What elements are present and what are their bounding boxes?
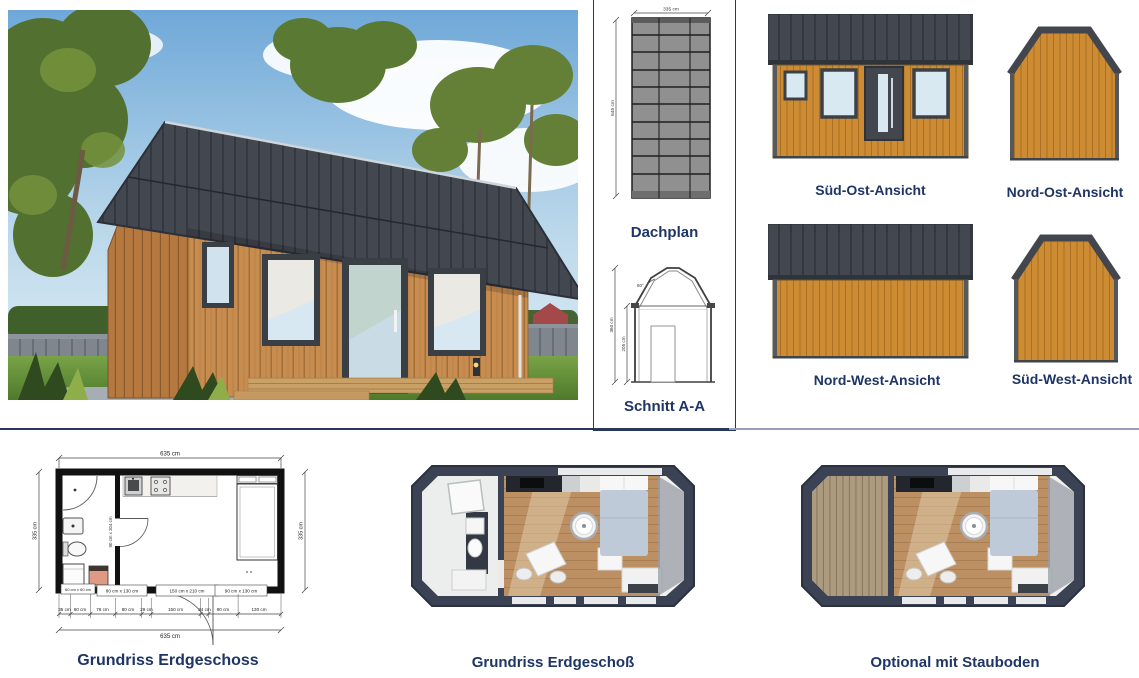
end-wedge xyxy=(658,476,684,596)
render-plan-caption: Grundriss Erdgeschoß xyxy=(433,654,673,671)
roof-dim-width: 335 cm xyxy=(663,7,679,13)
elevation-nord-west xyxy=(768,224,973,364)
dim-right-text: 335 cm xyxy=(299,522,305,540)
chair xyxy=(550,571,566,583)
small-window xyxy=(202,242,234,308)
svg-text:150 cm: 150 cm xyxy=(168,607,183,612)
render-plan xyxy=(408,462,698,610)
label-nord-ost: Nord-Ost-Ansicht xyxy=(985,184,1139,200)
svg-text:90 cm: 90 cm xyxy=(217,607,230,612)
roof-plan-title: Dachplan xyxy=(594,224,735,241)
window-right xyxy=(914,70,948,117)
elevation-nord-ost xyxy=(1002,18,1127,166)
entry-door xyxy=(865,67,903,140)
chain-labels: 35 cm 60 cm 76 cm 80 cm 29 cm 150 cm 24 … xyxy=(58,607,266,612)
section-title: Schnitt A-A xyxy=(594,398,735,415)
window-right xyxy=(428,268,486,356)
svg-text:76 cm: 76 cm xyxy=(96,607,109,612)
svg-text:90 cm x 130 cm: 90 cm x 130 cm xyxy=(225,589,258,594)
svg-text:60 cm x 60 cm: 60 cm x 60 cm xyxy=(65,587,92,592)
siding xyxy=(773,280,968,358)
optional-plan xyxy=(798,462,1088,610)
chair xyxy=(906,568,922,580)
doormat xyxy=(628,584,658,593)
svg-text:29 cm: 29 cm xyxy=(140,607,153,612)
svg-text:60 cm: 60 cm xyxy=(74,607,87,612)
label-sued-west: Süd-West-Ansicht xyxy=(992,371,1139,387)
svg-text:80 cm x 130 cm: 80 cm x 130 cm xyxy=(106,589,139,594)
chair xyxy=(940,571,956,583)
dim-bottom-text: 635 cm xyxy=(160,634,180,640)
toilet xyxy=(468,539,482,557)
section-drawing: 360 cm 205 cm 60° xyxy=(601,252,729,394)
end-wedge xyxy=(1048,476,1074,596)
kitchen xyxy=(123,476,217,497)
glass-door xyxy=(342,258,408,394)
plans-column: 335 cm 645 cm Dachplan 360 cm 205 cm xyxy=(593,0,736,431)
section-door xyxy=(651,326,675,382)
dim-top-text: 635 cm xyxy=(160,452,180,458)
cabin-photo xyxy=(8,10,578,400)
svg-text:35 cm: 35 cm xyxy=(58,607,71,612)
divider-wall xyxy=(888,476,894,596)
extension-lines xyxy=(59,594,281,618)
label-nord-west: Nord-West-Ansicht xyxy=(768,372,986,388)
section-angle: 60° xyxy=(637,283,644,288)
technical-floor-plan: 635 cm 335 cm 335 cm 90 cm x 204 cm xyxy=(15,448,325,648)
vanity xyxy=(452,570,486,590)
elevation-sued-ost xyxy=(768,14,973,164)
cooktop xyxy=(910,478,934,488)
window-left xyxy=(262,254,320,346)
floor-plan-caption: Grundriss Erdgeschoss xyxy=(40,652,296,670)
bed xyxy=(237,476,278,561)
svg-text:80 cm: 80 cm xyxy=(122,607,135,612)
bed-mattress xyxy=(990,490,1038,556)
roof-band xyxy=(768,224,973,279)
svg-text:150 cm x 210 cm: 150 cm x 210 cm xyxy=(170,589,205,594)
elevation-sued-west xyxy=(1006,226,1128,366)
window-left xyxy=(822,70,856,117)
roof-band xyxy=(768,14,973,64)
label-sued-ost: Süd-Ost-Ansicht xyxy=(768,182,973,198)
roof-panels xyxy=(632,18,710,198)
door-handle xyxy=(394,310,397,332)
doormat xyxy=(1018,584,1048,593)
roof-plan-drawing: 335 cm 645 cm xyxy=(604,4,724,216)
sink xyxy=(466,518,484,534)
section-total-height: 360 cm xyxy=(609,317,614,332)
svg-text:24 cm: 24 cm xyxy=(198,607,211,612)
shower xyxy=(448,480,484,514)
stove-unit xyxy=(89,566,108,585)
horizontal-divider xyxy=(0,428,1139,430)
lantern xyxy=(473,358,480,376)
small-window xyxy=(785,72,806,99)
bed-mattress xyxy=(600,490,648,556)
dim-left-text: 335 cm xyxy=(33,522,39,540)
opening-labels: 80 cm x 130 cm 150 cm x 210 cm 90 cm x 1… xyxy=(61,584,267,596)
cooktop xyxy=(520,478,544,488)
dim-bottom xyxy=(56,627,284,633)
optional-plan-caption: Optional mit Stauboden xyxy=(835,654,1075,671)
chair xyxy=(516,568,532,580)
section-wall-height: 205 cm xyxy=(621,336,626,351)
roof-dim-length: 645 cm xyxy=(610,100,616,116)
svg-text:130 cm: 130 cm xyxy=(251,607,266,612)
interior-door-label: 90 cm x 204 cm xyxy=(108,516,113,547)
